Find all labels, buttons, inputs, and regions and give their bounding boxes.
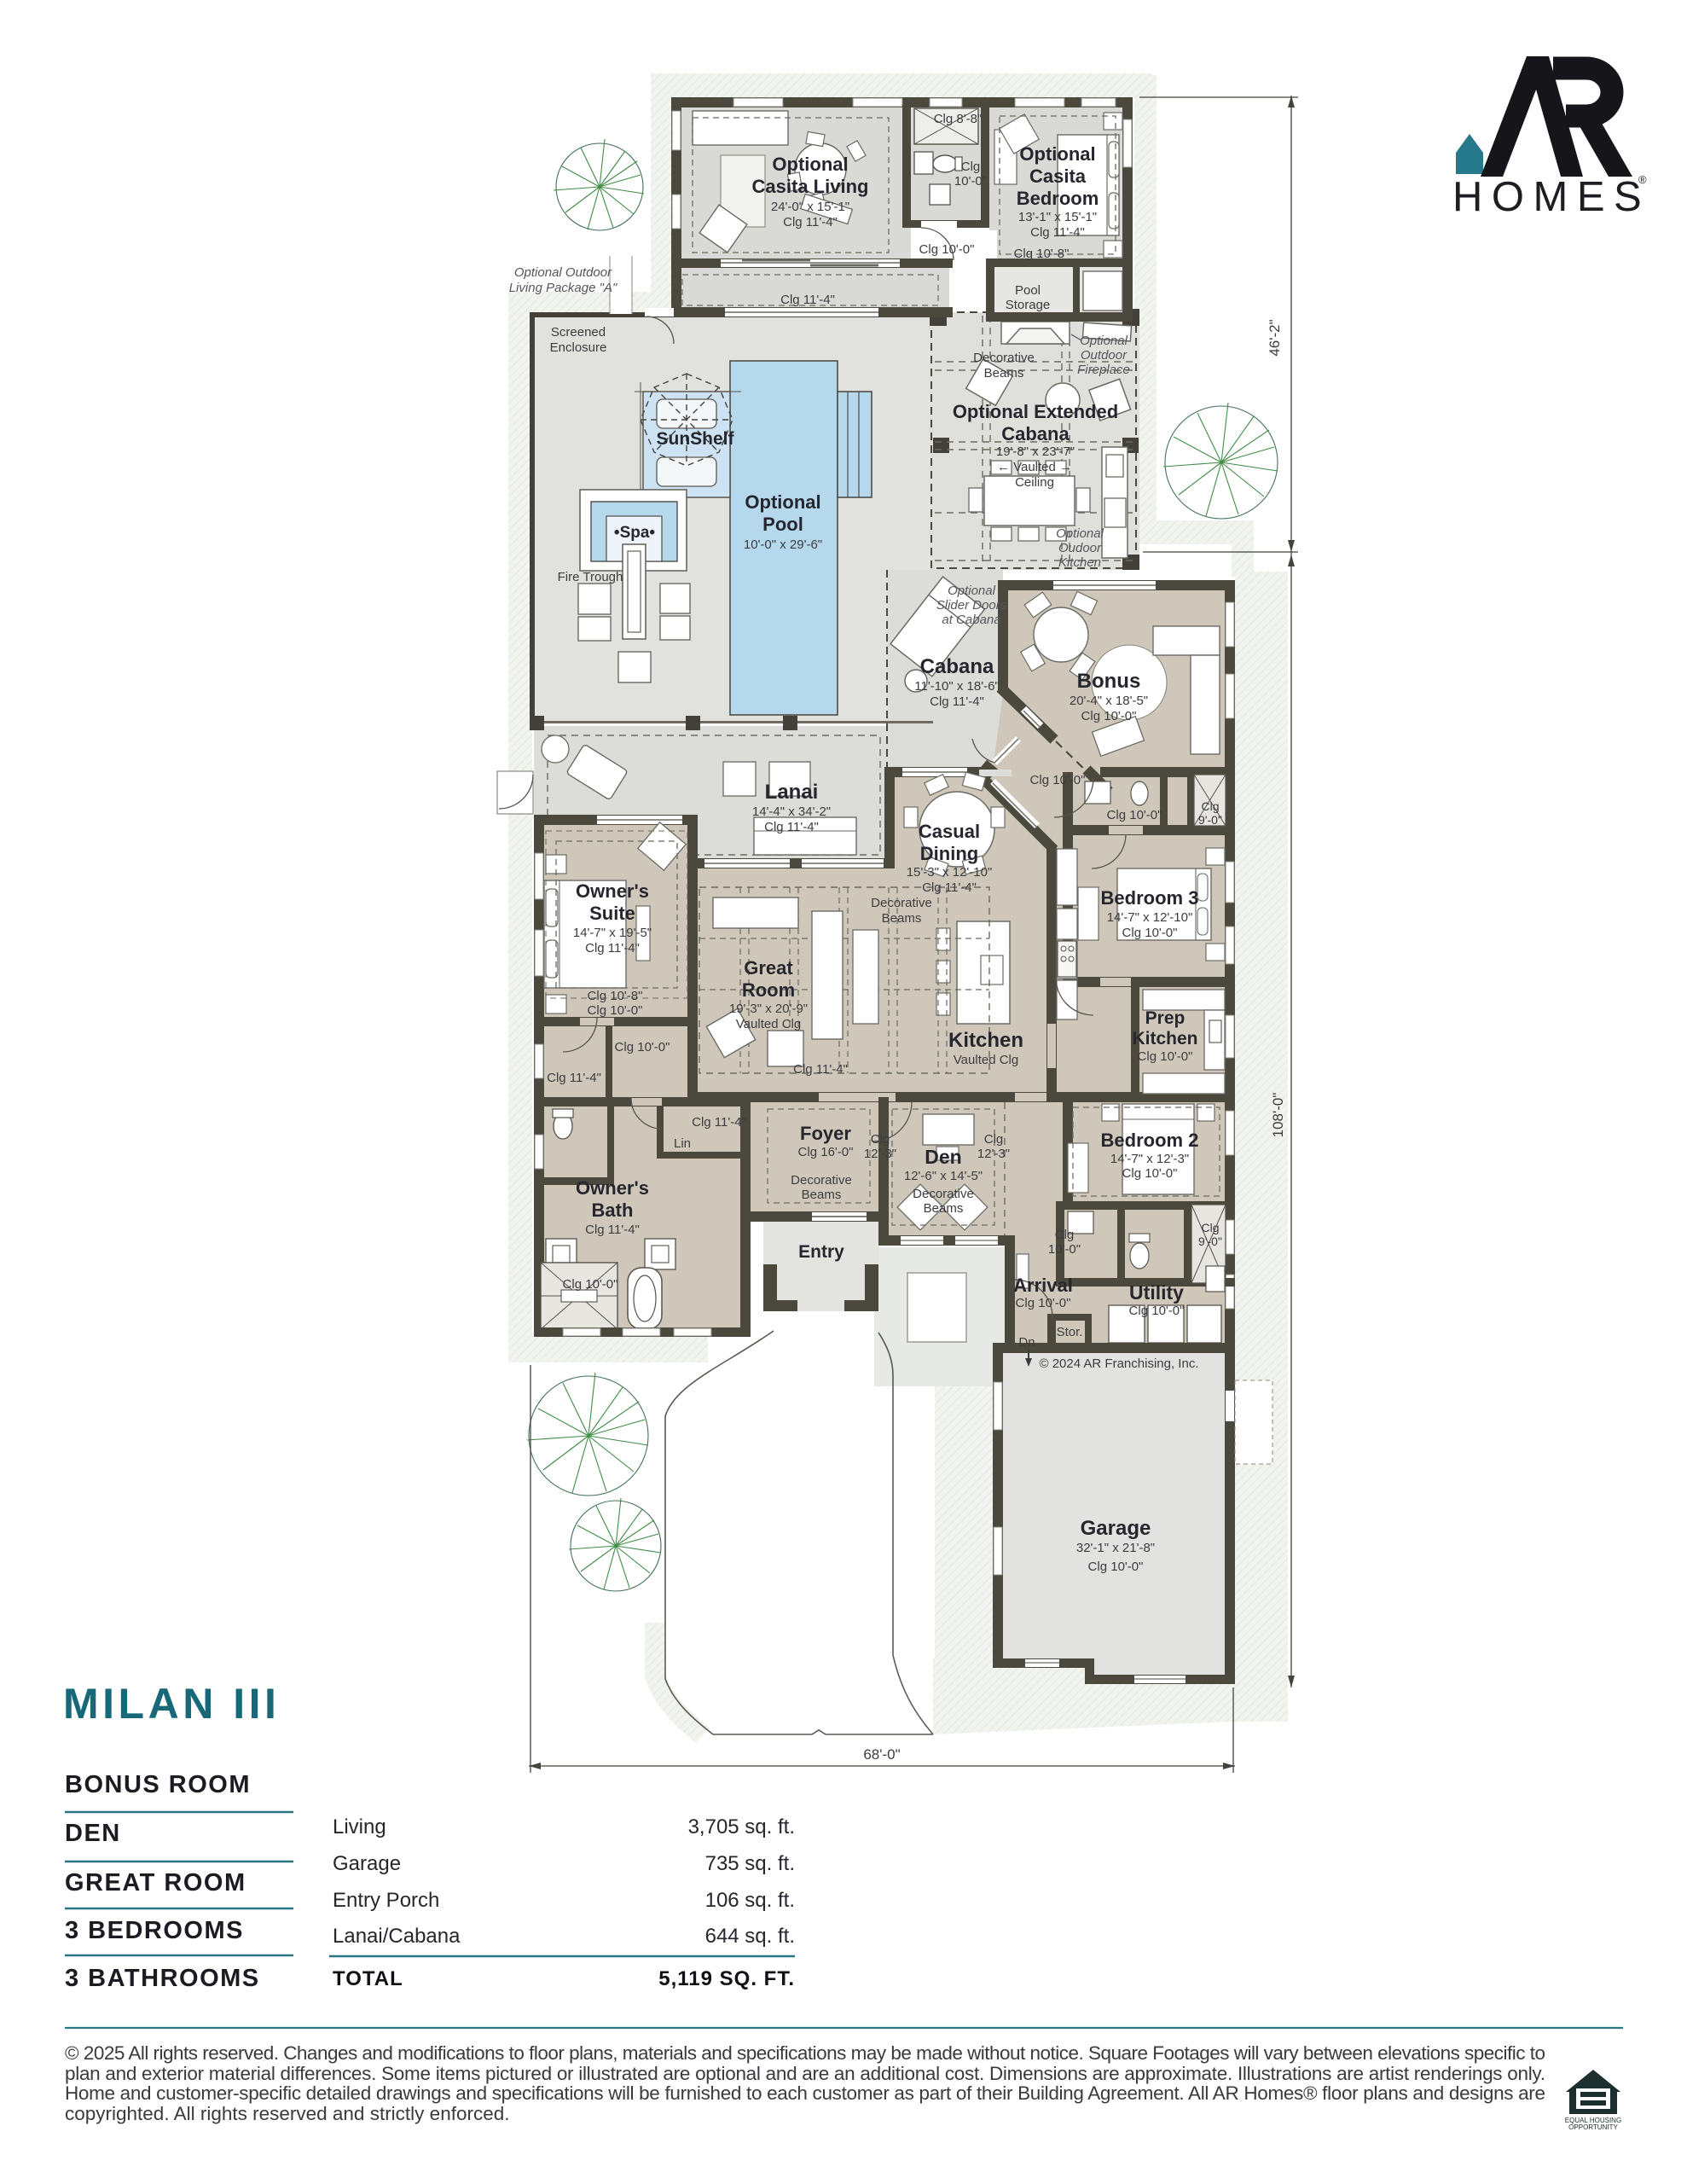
svg-text:Clg 10'-8": Clg 10'-8" [588,989,643,1003]
svg-text:Entry Porch: Entry Porch [333,1889,439,1912]
svg-text:Clg 11'-4": Clg 11'-4" [585,1223,640,1237]
svg-text:Clg 11'-4": Clg 11'-4" [764,820,819,834]
svg-text:Garage: Garage [333,1852,401,1875]
svg-text:Slider Doors: Slider Doors [936,598,1007,613]
svg-text:Ceiling: Ceiling [1015,475,1054,490]
svg-text:12'-3": 12'-3" [977,1147,1010,1161]
svg-text:644 sq. ft.: 644 sq. ft. [705,1925,795,1948]
svg-text:Optional: Optional [745,491,820,513]
svg-text:Bedroom 3: Bedroom 3 [1101,887,1199,909]
svg-text:© 2025 All rights reserved. Ch: © 2025 All rights reserved. Changes and … [65,2042,1545,2064]
svg-text:15'-3" x 12'-10": 15'-3" x 12'-10" [907,865,993,880]
svg-text:32'-1" x 21'-8": 32'-1" x 21'-8" [1076,1541,1155,1555]
svg-text:Clg 11'-4": Clg 11'-4" [1030,225,1085,240]
svg-text:Beams: Beams [882,911,922,926]
svg-text:Clg: Clg [871,1132,890,1147]
svg-text:Living Package "A": Living Package "A" [509,281,617,295]
svg-text:Bedroom 2: Bedroom 2 [1101,1130,1199,1151]
svg-text:Garage: Garage [1081,1517,1151,1540]
svg-text:Clg 10'-0": Clg 10'-0" [1122,926,1178,940]
svg-text:Optional: Optional [1080,334,1128,348]
svg-text:Pool: Pool [1015,283,1041,298]
svg-text:Kitchen: Kitchen [1058,555,1101,570]
svg-text:10'-0" x 29'-6": 10'-0" x 29'-6" [744,537,822,552]
svg-text:106 sq. ft.: 106 sq. ft. [705,1889,795,1912]
svg-text:14'-7" x 12'-10": 14'-7" x 12'-10" [1107,910,1193,925]
svg-text:copyrighted. All rights reserv: copyrighted. All rights reserved and str… [65,2103,510,2124]
svg-text:Clg 11'-4": Clg 11'-4" [585,941,640,955]
svg-text:Clg 10'-0": Clg 10'-0" [1138,1049,1193,1064]
svg-text:Pool: Pool [762,514,803,535]
svg-text:Bath: Bath [592,1199,634,1221]
svg-text:735 sq. ft.: 735 sq. ft. [705,1852,795,1875]
svg-text:19'-8" x 23'-7": 19'-8" x 23'-7" [996,444,1075,459]
svg-text:Clg 10'-0": Clg 10'-0" [1016,1296,1071,1310]
svg-text:Storage: Storage [1006,298,1051,312]
svg-text:Clg 10'-0": Clg 10'-0" [1129,1304,1185,1318]
svg-text:Casita: Casita [1029,166,1087,187]
svg-text:3 BEDROOMS: 3 BEDROOMS [65,1917,244,1944]
svg-text:Decorative: Decorative [913,1187,974,1201]
svg-text:Clg: Clg [1055,1228,1075,1242]
svg-text:Vaulted Clg: Vaulted Clg [954,1053,1018,1067]
svg-text:plan and exterior material dif: plan and exterior material differences. … [65,2063,1545,2084]
svg-text:Cabana: Cabana [920,655,994,678]
svg-text:Kitchen: Kitchen [1132,1029,1197,1048]
svg-text:Clg: Clg [1201,799,1219,813]
svg-text:Foyer: Foyer [800,1123,851,1144]
svg-text:Decorative: Decorative [973,351,1035,365]
svg-text:Decorative: Decorative [871,896,932,910]
svg-text:DEN: DEN [65,1820,121,1847]
svg-text:Living: Living [333,1815,386,1838]
svg-text:Clg 11'-4": Clg 11'-4" [547,1071,601,1085]
svg-text:Beams: Beams [984,366,1024,380]
svg-text:Optional Outdoor: Optional Outdoor [514,265,612,280]
svg-text:Optional: Optional [1056,526,1104,541]
svg-text:Clg 16'-0": Clg 16'-0" [798,1145,854,1159]
svg-text:Bonus: Bonus [1077,670,1141,693]
svg-text:14'-7" x 12'-3": 14'-7" x 12'-3" [1110,1152,1189,1166]
svg-text:Clg: Clg [961,160,981,174]
svg-text:13'-1" x 15'-1": 13'-1" x 15'-1" [1018,210,1097,224]
svg-text:5,119 SQ. FT.: 5,119 SQ. FT. [658,1967,795,1990]
svg-text:Dn: Dn [1018,1335,1035,1350]
svg-text:Bedroom: Bedroom [1017,188,1099,209]
svg-text:Optional: Optional [1019,143,1095,165]
svg-text:®: ® [1638,173,1647,186]
svg-text:12'-6" x 14'-5": 12'-6" x 14'-5" [904,1169,983,1183]
svg-text:Optional: Optional [772,154,848,175]
svg-text:20'-4" x 18'-5": 20'-4" x 18'-5" [1070,694,1148,708]
svg-text:GREAT ROOM: GREAT ROOM [65,1869,246,1896]
svg-text:© 2024 AR Franchising, Inc.: © 2024 AR Franchising, Inc. [1040,1356,1199,1371]
svg-text:Entry: Entry [798,1242,844,1262]
svg-text:10'-0": 10'-0" [954,174,987,189]
svg-text:9'-0": 9'-0" [1198,1234,1222,1248]
svg-text:Lanai: Lanai [765,781,819,804]
svg-text:68'-0": 68'-0" [863,1746,900,1763]
svg-text:Casual: Casual [919,821,980,842]
svg-text:9'-0": 9'-0" [1198,813,1222,827]
svg-text:Decorative: Decorative [791,1173,852,1188]
svg-text:Clg 10'-0": Clg 10'-0" [563,1277,618,1292]
svg-text:Dining: Dining [920,843,978,864]
svg-text:at Cabana: at Cabana [942,613,1000,627]
svg-text:Utility: Utility [1129,1281,1184,1304]
svg-text:Clg 11'-4": Clg 11'-4" [783,215,838,229]
svg-text:SunShelf: SunShelf [656,429,734,449]
svg-text:HOMES: HOMES [1452,174,1650,220]
svg-text:Outdoor: Outdoor [1081,348,1128,363]
svg-text:Clg: Clg [984,1132,1004,1147]
svg-text:Casita Living: Casita Living [752,176,869,197]
svg-text:Enclosure: Enclosure [550,340,607,355]
svg-text:Vaulted Clg: Vaulted Clg [736,1017,801,1031]
svg-text:TOTAL: TOTAL [333,1967,403,1990]
svg-text:Clg 10'-0": Clg 10'-0" [1081,709,1137,723]
svg-text:19'-3" x 20'-9": 19'-3" x 20'-9" [729,1002,808,1016]
svg-text:OPPORTUNITY: OPPORTUNITY [1568,2123,1618,2131]
svg-text:Home and customer-specific det: Home and customer-specific detailed draw… [65,2082,1545,2104]
svg-text:10'-0": 10'-0" [1048,1242,1081,1257]
svg-text:Room: Room [742,979,795,1001]
svg-text:Owner's: Owner's [576,1177,649,1199]
svg-text:← Vaulted →: ← Vaulted → [997,460,1072,474]
svg-text:Fire Trough: Fire Trough [558,570,623,584]
svg-text:Clg 8'-8": Clg 8'-8" [934,112,983,126]
svg-text:14'-7" x 19'-5": 14'-7" x 19'-5" [573,926,652,940]
svg-text:Arrival: Arrival [1013,1275,1073,1296]
svg-text:BONUS ROOM: BONUS ROOM [65,1771,251,1798]
svg-text:Clg 10'-0": Clg 10'-0" [1122,1166,1178,1181]
svg-text:Stor.: Stor. [1057,1325,1083,1339]
svg-text:Clg 10'-8": Clg 10'-8" [1014,247,1070,261]
svg-text:Owner's: Owner's [576,880,649,902]
svg-text:Cabana: Cabana [1001,423,1070,444]
svg-text:Prep: Prep [1145,1008,1186,1028]
svg-text:Clg: Clg [1201,1221,1219,1234]
svg-text:Den: Den [925,1146,961,1168]
svg-text:Oudoor: Oudoor [1058,541,1102,555]
svg-text:Optional Extended: Optional Extended [953,401,1118,422]
svg-text:MILAN III: MILAN III [63,1680,280,1728]
svg-text:Clg 11'-4": Clg 11'-4" [930,694,984,709]
svg-text:3 BATHROOMS: 3 BATHROOMS [65,1965,260,1992]
svg-text:Great: Great [744,957,793,979]
svg-text:Clg 11'-4": Clg 11'-4" [922,880,977,895]
svg-text:Lanai/Cabana: Lanai/Cabana [333,1925,461,1948]
svg-text:Clg 10'-0": Clg 10'-0" [1107,808,1162,822]
svg-text:46'-2": 46'-2" [1267,319,1283,356]
svg-text:Clg 10'-0": Clg 10'-0" [1088,1560,1144,1574]
svg-text:Clg 10'-0": Clg 10'-0" [615,1040,670,1054]
svg-text:24'-0" x 15'-1": 24'-0" x 15'-1" [771,200,849,214]
svg-text:Fireplace: Fireplace [1077,363,1130,377]
svg-text:•Spa•: •Spa• [614,524,655,542]
svg-text:Clg 10'-0": Clg 10'-0" [588,1003,643,1018]
svg-text:Clg 10'-0": Clg 10'-0" [1030,773,1086,787]
svg-text:Clg 11'-4": Clg 11'-4" [793,1062,848,1077]
svg-text:Kitchen: Kitchen [948,1029,1023,1052]
svg-text:Lin: Lin [674,1136,691,1151]
svg-text:Beams: Beams [924,1201,964,1216]
svg-text:12'-3": 12'-3" [864,1147,896,1161]
svg-text:Optional: Optional [948,584,996,598]
svg-text:Clg 10'-0": Clg 10'-0" [919,242,975,257]
svg-text:Suite: Suite [589,903,635,924]
svg-text:Clg 11'-4": Clg 11'-4" [692,1115,746,1130]
svg-text:Beams: Beams [802,1188,842,1202]
svg-text:Clg 11'-4": Clg 11'-4" [780,293,835,307]
svg-text:108'-0": 108'-0" [1270,1093,1286,1138]
svg-text:14'-4" x 34'-2": 14'-4" x 34'-2" [752,804,831,819]
svg-text:3,705 sq. ft.: 3,705 sq. ft. [688,1815,795,1838]
svg-text:11'-10" x 18'-6": 11'-10" x 18'-6" [914,679,1000,694]
svg-text:Screened: Screened [551,325,606,340]
